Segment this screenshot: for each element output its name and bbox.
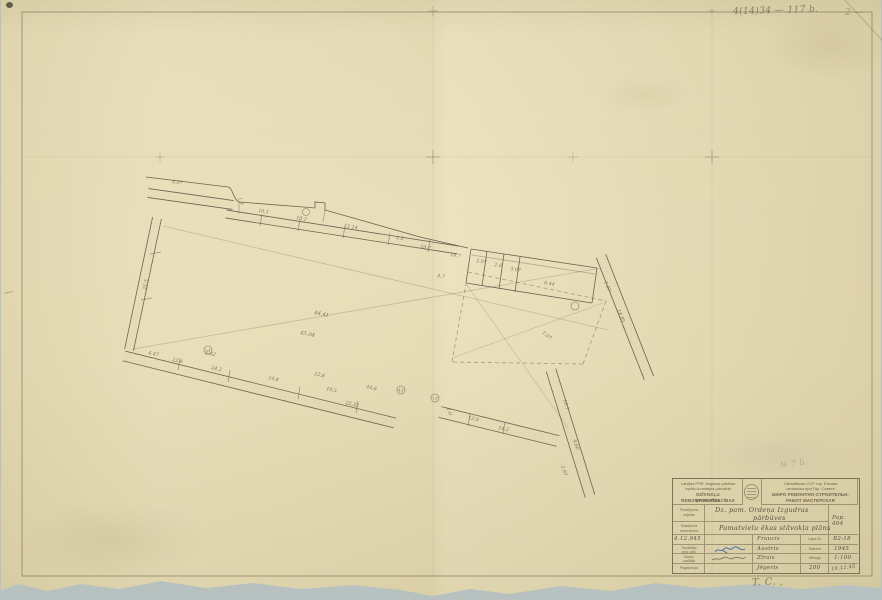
date-entry: 4.12.945 <box>674 536 701 542</box>
sign-r4-c5: 19.12.45 <box>829 564 858 574</box>
object-value-line1: Dz. pam. Ordeņa Izgudras <box>715 506 809 514</box>
svg-text:4.4: 4.4 <box>397 388 403 392</box>
dimension-label: 10.1 <box>258 208 269 216</box>
dimension-label: 2.97 <box>559 464 569 478</box>
stamp-emblem <box>744 484 759 500</box>
name-entry: Austris <box>757 546 779 552</box>
wall-band <box>546 369 595 498</box>
sign-r2-c2 <box>705 545 753 555</box>
pencil-note-top-right-2: 2 — <box>845 8 864 18</box>
scale-value: 1:100 <box>834 555 851 561</box>
dimension-label: 2.62 <box>204 350 217 358</box>
name-entry: Zīrais <box>757 555 775 561</box>
sign-r3-c3: Zīrais <box>753 554 801 564</box>
dimension-label: 24.2 <box>210 365 223 373</box>
sign-r1-c4: Lapa Nr. <box>801 535 829 545</box>
sign-r3-c1: Darbu vadītājs <box>673 554 705 564</box>
sign-r1-c1: 4.12.945 <box>673 535 705 545</box>
dimension-label: 18.5 <box>326 386 338 394</box>
sign-r4-c4: 200 <box>801 564 829 574</box>
value-entry: 200 <box>809 565 820 571</box>
dimension-label: 2.07 <box>540 329 554 342</box>
title-block: Latvijas PSR Jelgavas pilsētas izpildu k… <box>672 478 860 574</box>
object-label-line2: objekts <box>673 513 705 517</box>
drawing-row-label: Rasējuma nosaukums <box>673 522 705 535</box>
sign-r3-c2 <box>705 554 753 564</box>
plan-line <box>452 284 466 362</box>
small-label: Mērogs <box>801 556 829 560</box>
wall-band <box>125 217 162 351</box>
org-block-left: Latvijas PSR Jelgavas pilsētas izpildu k… <box>673 479 743 505</box>
object-row-label: Pasūtījuma objekts <box>673 505 705 522</box>
dimension-label: 44.8 <box>365 384 378 392</box>
date-scribble: 19.12.45 <box>831 563 856 572</box>
name-entry: Jēgeris <box>757 565 779 571</box>
org-left-line2: izpildu komitejas pārvalde <box>673 486 743 491</box>
drawing-title: Pamatvielu ēkas stāvokļa plāns <box>719 524 831 532</box>
boundary-line <box>146 177 468 248</box>
sign-r2-c3: Austris <box>753 545 801 555</box>
plan-line <box>466 283 592 303</box>
plan-line <box>452 362 583 364</box>
dimension-label: 8.97 <box>172 179 184 187</box>
sign-r1-c2 <box>705 535 753 545</box>
plan-line <box>482 251 487 286</box>
plan-line <box>466 284 568 428</box>
dimension-label: 1.9 <box>236 197 244 206</box>
plan-line <box>472 255 595 274</box>
plan-line <box>583 301 606 364</box>
dimension-label: 14.7 <box>450 252 462 260</box>
org-right-line4: РАБОТ МАСТЕРСКАЯ <box>762 498 859 504</box>
dimension-label: 2.0 <box>493 262 503 269</box>
sign-r1-c5: B2-18 <box>829 535 858 545</box>
sign-r4-c1: Pagatavoja <box>673 564 705 574</box>
wall-band <box>123 351 396 428</box>
svg-text:1.8: 1.8 <box>432 396 437 400</box>
sign-r3-c4: Mērogs <box>801 554 829 564</box>
dimension-label: 22.8 <box>313 371 326 379</box>
dimension-balloon <box>571 302 579 310</box>
scanned-sheet: 2.44.41.88.971.910.110.211.141.210.714.7… <box>0 0 882 600</box>
org-right-line2: исполком при Гор. Совете <box>762 486 859 491</box>
org-block-right: Латвийская ССР гор. Елгава исполком при … <box>761 479 858 505</box>
signature-ink <box>710 555 748 563</box>
sign-r1-c3: Fraucis <box>753 535 801 545</box>
drawing-label-line2: nosaukums <box>673 529 705 533</box>
small-label: Lapa Nr. <box>801 537 829 541</box>
dimension-balloon <box>303 209 310 216</box>
value-entry: 1945 <box>834 546 849 552</box>
sheet-number: Pap. 404 <box>832 515 858 527</box>
dimension-label: 45.04 <box>299 330 316 339</box>
sign-r3-c5: 1:100 <box>829 554 858 564</box>
sign-r2-c4: Datums <box>801 545 829 555</box>
dimension-label: 3.07 <box>510 266 522 274</box>
signature-blue-ink <box>713 546 747 554</box>
value-entry: B2-18 <box>833 536 851 542</box>
sign-r4-c2 <box>705 564 753 574</box>
sign-r2-c1: Sastādīja proj. vad. <box>673 545 705 555</box>
pencil-note-bottom: T. C. , <box>752 576 784 588</box>
dimension-label: 1.2 <box>396 235 404 242</box>
plan-line <box>466 249 471 283</box>
name-entry: Fraucis <box>757 536 780 542</box>
role-label: Pagatavoja <box>673 566 705 570</box>
object-row-right-cell: Pap. 404 <box>829 505 858 535</box>
wall-band <box>596 254 653 380</box>
object-label-line1: Pasūtījuma <box>673 508 705 512</box>
plan-line <box>471 249 597 268</box>
object-row-value: Dz. pam. Ordeņa Izgudras pārbūves <box>705 505 829 522</box>
object-value-line2: pārbūves <box>753 514 786 522</box>
small-label: Datums <box>801 547 829 551</box>
org-right-line3: БЮРО РЕМОНТНО-СТРОИТЕЛЬН. <box>762 492 859 498</box>
plan-line <box>133 268 601 349</box>
sign-r4-c3: Jēgeris <box>753 564 801 574</box>
plan-line <box>323 210 325 222</box>
org-left-line4: DARBNĪCA <box>673 498 743 504</box>
drawing-label-line1: Rasējuma <box>673 524 705 528</box>
dimension-label: 4.7 <box>436 273 446 281</box>
sign-r2-c5: 1945 <box>829 545 858 555</box>
dimension-label: 6.44 <box>544 280 556 288</box>
dimension-label: 14.8 <box>268 375 280 383</box>
drawing-row-value: Pamatvielu ēkas stāvokļa plāns <box>705 522 829 535</box>
